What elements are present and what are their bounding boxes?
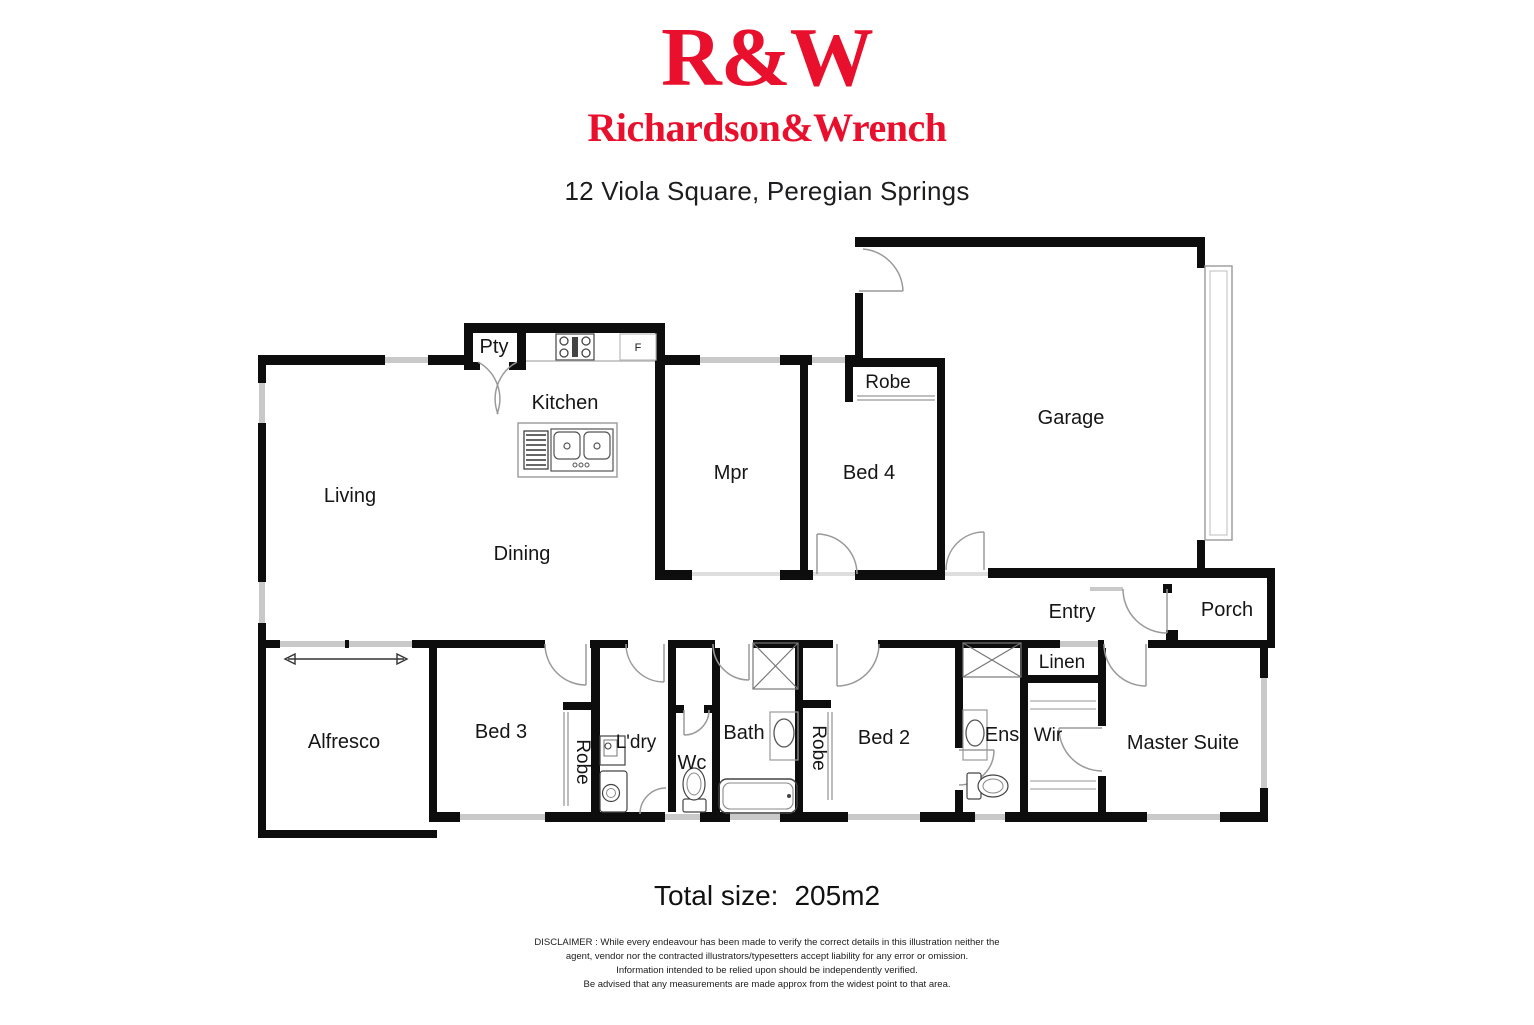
room-label-dining: Dining [494, 543, 551, 565]
room-label-alfresco: Alfresco [308, 731, 380, 753]
disclaimer-line: DISCLAIMER : While every endeavour has b… [0, 936, 1534, 950]
total-size-value: 205m2 [794, 880, 880, 912]
ens-vanity [963, 710, 987, 760]
garage-door [1205, 266, 1232, 540]
room-label-kitchen: Kitchen [532, 392, 599, 414]
room-label-garage: Garage [1038, 407, 1105, 429]
property-address: 12 Viola Square, Peregian Springs [0, 176, 1534, 207]
rw-logo: R&W [0, 0, 1534, 100]
room-label-robe-bed3: Robe [572, 739, 593, 784]
ens-shower [963, 643, 1021, 677]
room-label-wir: Wir [1034, 725, 1063, 746]
room-label-bed3: Bed 3 [475, 721, 527, 743]
ens-toilet [967, 773, 1008, 799]
richardson-wrench-wordmark: Richardson&Wrench [0, 108, 1534, 148]
room-label-ens: Ens [985, 724, 1019, 746]
windows [259, 357, 1267, 820]
room-label-bed4: Bed 4 [843, 462, 895, 484]
disclaimer-line: Be advised that any measurements are mad… [0, 978, 1534, 992]
room-label-wc: Wc [678, 752, 707, 774]
walls [258, 237, 1275, 838]
room-label-porch: Porch [1201, 599, 1253, 621]
bath-vanity [770, 712, 798, 760]
room-label-entry: Entry [1049, 601, 1096, 623]
total-size: Total size: 205m2 [0, 880, 1534, 912]
room-label-living: Living [324, 485, 376, 507]
bathtub [719, 779, 797, 813]
room-label-bed2: Bed 2 [858, 727, 910, 749]
room-label-master: Master Suite [1127, 732, 1239, 754]
room-label-robe-bed2: Robe [808, 725, 829, 770]
disclaimer-line: agent, vendor nor the contracted illustr… [0, 950, 1534, 964]
room-label-bath: Bath [723, 722, 764, 744]
header: R&W Richardson&Wrench 12 Viola Square, P… [0, 0, 1534, 207]
room-label-laundry: L'dry [616, 732, 657, 753]
room-label-fridge: F [635, 342, 642, 354]
room-label-mpr: Mpr [714, 462, 749, 484]
bath-shower [753, 643, 798, 689]
washing-machine [600, 771, 627, 812]
alfresco-slider-arrow [285, 654, 407, 664]
floor-plan: Pty Kitchen F Living Dining Mpr Bed 4 Ro… [258, 237, 1275, 845]
kitchen-island [518, 423, 617, 477]
room-label-robe-bed4: Robe [865, 372, 910, 393]
disclaimer: DISCLAIMER : While every endeavour has b… [0, 936, 1534, 992]
total-size-label: Total size: [654, 880, 779, 912]
room-label-linen: Linen [1039, 652, 1086, 673]
room-labels: Pty Kitchen F Living Dining Mpr Bed 4 Ro… [308, 336, 1253, 785]
room-label-pty: Pty [480, 336, 509, 358]
disclaimer-line: Information intended to be relied upon s… [0, 964, 1534, 978]
wc-toilet [683, 768, 706, 812]
